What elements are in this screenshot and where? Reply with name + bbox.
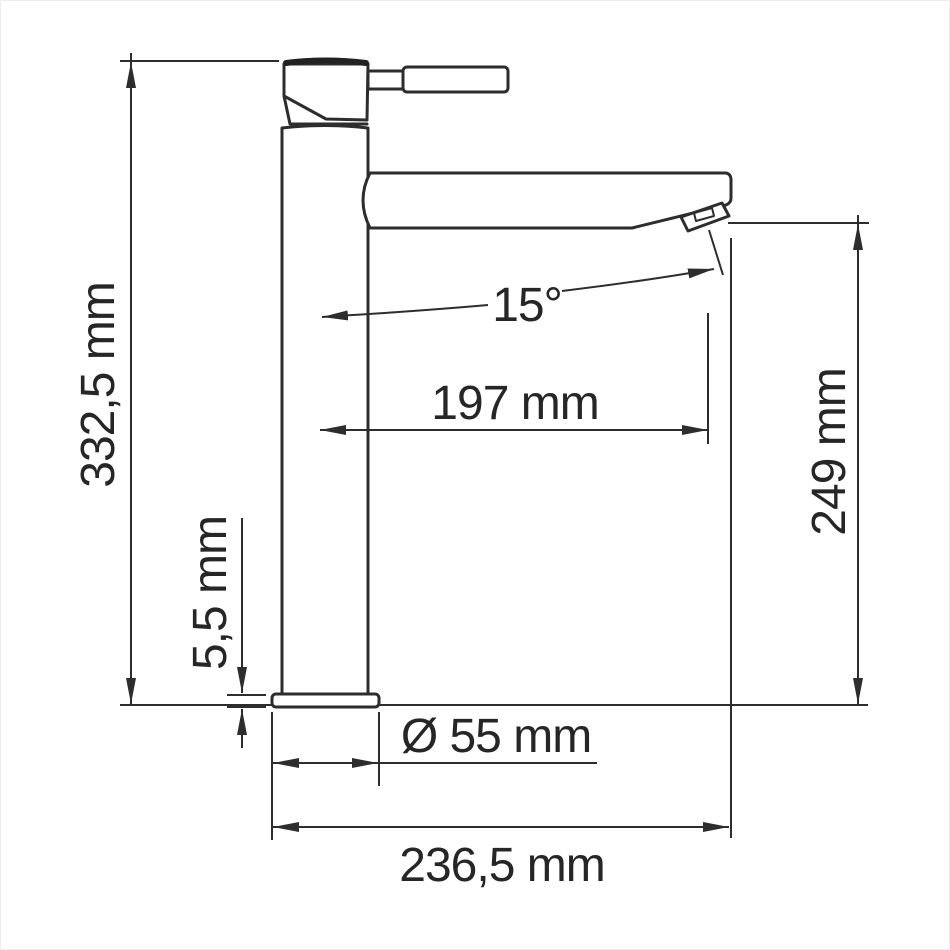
dimension-base-thickness: 5,5 mm <box>184 516 266 748</box>
label-spout-reach: 197 mm <box>431 377 598 430</box>
label-base-diameter: Ø 55 mm <box>401 710 591 763</box>
faucet-dimension-diagram: 332,5 mm 5,5 mm 15° 197 mm <box>0 0 950 950</box>
handle-grip <box>403 67 508 92</box>
angle-tick <box>709 230 723 275</box>
faucet-head <box>284 64 368 120</box>
base-plate <box>272 694 379 707</box>
dimension-total-height: 332,5 mm <box>72 53 279 704</box>
dimension-outlet-height: 249 mm <box>728 215 869 838</box>
label-total-depth: 236,5 mm <box>399 839 604 892</box>
dimension-total-depth: 236,5 mm <box>273 827 729 892</box>
label-outlet-height: 249 mm <box>803 368 856 535</box>
faucet-spout <box>363 173 731 228</box>
angle-arc-right <box>562 269 714 291</box>
technical-drawing-page: 332,5 mm 5,5 mm 15° 197 mm <box>0 0 950 950</box>
faucet-column <box>282 126 368 696</box>
handle-rod <box>368 71 403 89</box>
dimension-base-diameter: Ø 55 mm <box>272 710 597 840</box>
dimension-spout-reach: 197 mm <box>320 313 708 444</box>
dimension-spout-angle: 15° <box>322 230 723 332</box>
label-total-height: 332,5 mm <box>72 282 125 487</box>
label-base-thickness: 5,5 mm <box>184 516 237 670</box>
faucet-head-cap <box>286 61 366 64</box>
label-spout-angle: 15° <box>492 279 562 332</box>
